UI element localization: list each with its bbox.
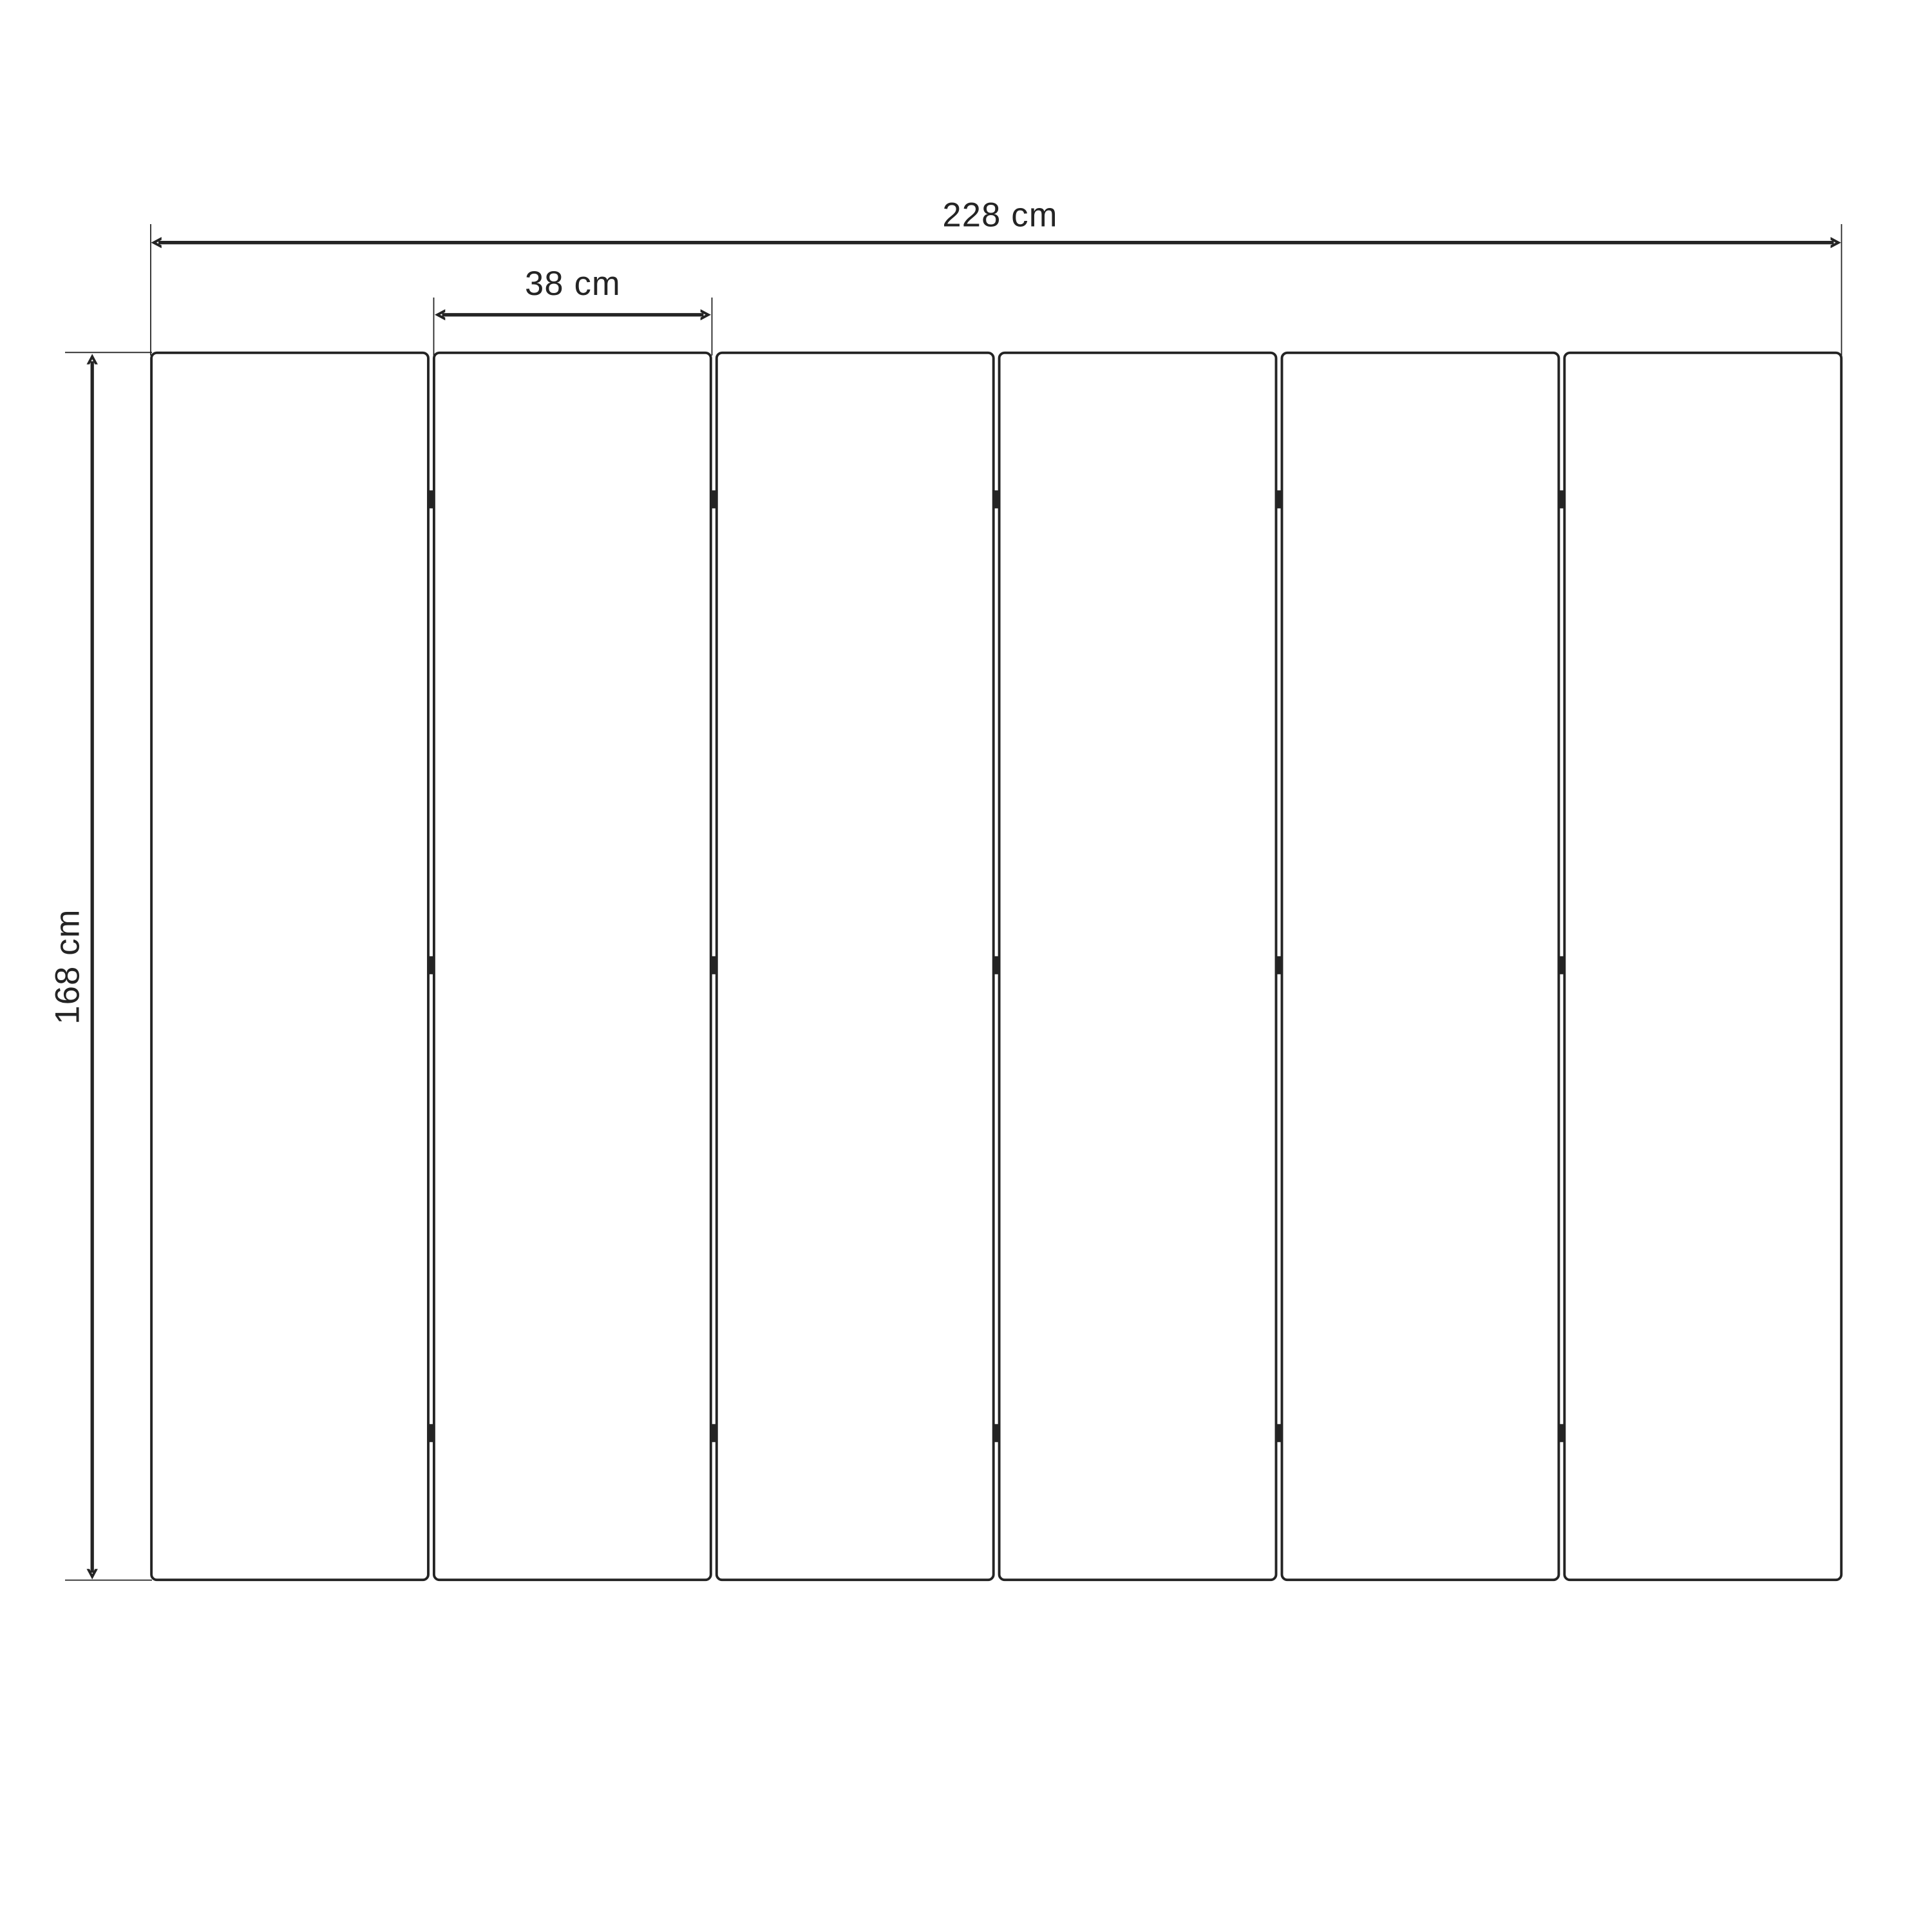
svg-text:38 cm: 38 cm (525, 265, 621, 303)
svg-text:228 cm: 228 cm (942, 196, 1057, 234)
svg-text:168 cm: 168 cm (49, 909, 87, 1024)
